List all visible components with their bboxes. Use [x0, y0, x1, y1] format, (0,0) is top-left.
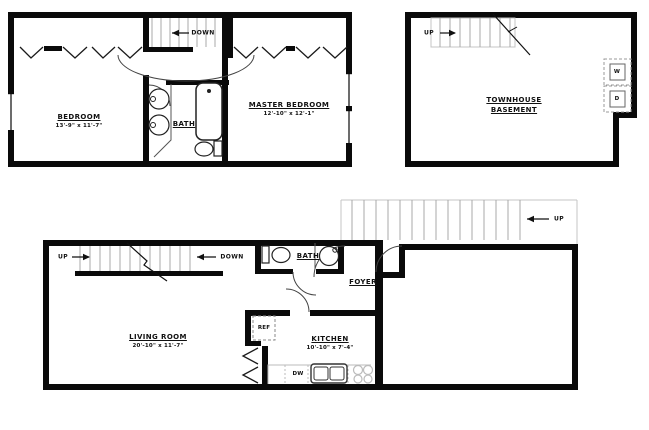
floor-plan-sheet: BEDROOM 13'-9" x 11'-7" BATH MASTER BEDR… — [0, 0, 649, 430]
stair-label-up-exterior: UP — [554, 216, 564, 223]
room-label-bedroom: BEDROOM — [58, 113, 101, 121]
basement-stair-break-line — [493, 14, 530, 55]
refrigerator-label: REF — [258, 325, 270, 331]
exterior-up-arrow — [527, 216, 549, 222]
toilet-icon — [272, 248, 290, 263]
room-label-upper-bath: BATH — [173, 120, 195, 128]
washer-dryer — [604, 59, 631, 112]
stair-label-up-basement: UP — [424, 30, 434, 37]
exterior-stairs-treads — [341, 200, 577, 244]
room-label-kitchen: KITCHEN — [311, 335, 348, 343]
toilet-tank-icon — [262, 246, 269, 263]
upper-down-arrow — [172, 30, 189, 36]
toilet-tank-icon — [214, 141, 222, 156]
room-dims-bedroom: 13'-9" x 11'-7" — [55, 123, 102, 129]
dryer-label: D — [615, 96, 620, 102]
main-down-arrow — [197, 254, 216, 260]
room-label-living-room: LIVING ROOM — [129, 333, 187, 341]
stove-icon — [354, 366, 373, 384]
stair-label-up-main: UP — [58, 254, 68, 261]
floor-plan-drawing — [0, 0, 649, 430]
room-label-basement: BASEMENT — [491, 106, 537, 114]
basement-up-arrow — [440, 30, 456, 36]
sink-icon — [149, 115, 169, 135]
main-up-arrow — [72, 254, 90, 260]
main-floor-plan — [43, 200, 578, 390]
room-label-main-bath: BATH — [297, 252, 319, 260]
main-closet-bifold-doors — [243, 348, 258, 383]
washer-label: W — [614, 69, 620, 75]
sink-icon — [149, 89, 169, 109]
toilet-icon — [195, 142, 213, 156]
room-dims-master-bedroom: 12'-10" x 12'-1" — [263, 111, 314, 117]
upper-floor-walls — [8, 12, 352, 167]
stair-label-down-upper: DOWN — [191, 30, 214, 37]
room-label-townhouse: TOWNHOUSE — [486, 96, 541, 104]
room-dims-living-room: 20'-10" x 11'-7" — [132, 343, 183, 349]
stair-label-down-main: DOWN — [220, 254, 243, 261]
sink-icon — [320, 247, 339, 266]
room-label-foyer: FOYER — [349, 278, 377, 286]
basement-plan — [405, 12, 637, 167]
upper-floor-plan — [6, 12, 354, 167]
upper-door-arcs — [118, 55, 254, 106]
room-dims-kitchen: 10'-10" x 7'-4" — [306, 345, 353, 351]
room-label-master-bedroom: MASTER BEDROOM — [249, 101, 330, 109]
dishwasher-label: DW — [292, 371, 303, 377]
